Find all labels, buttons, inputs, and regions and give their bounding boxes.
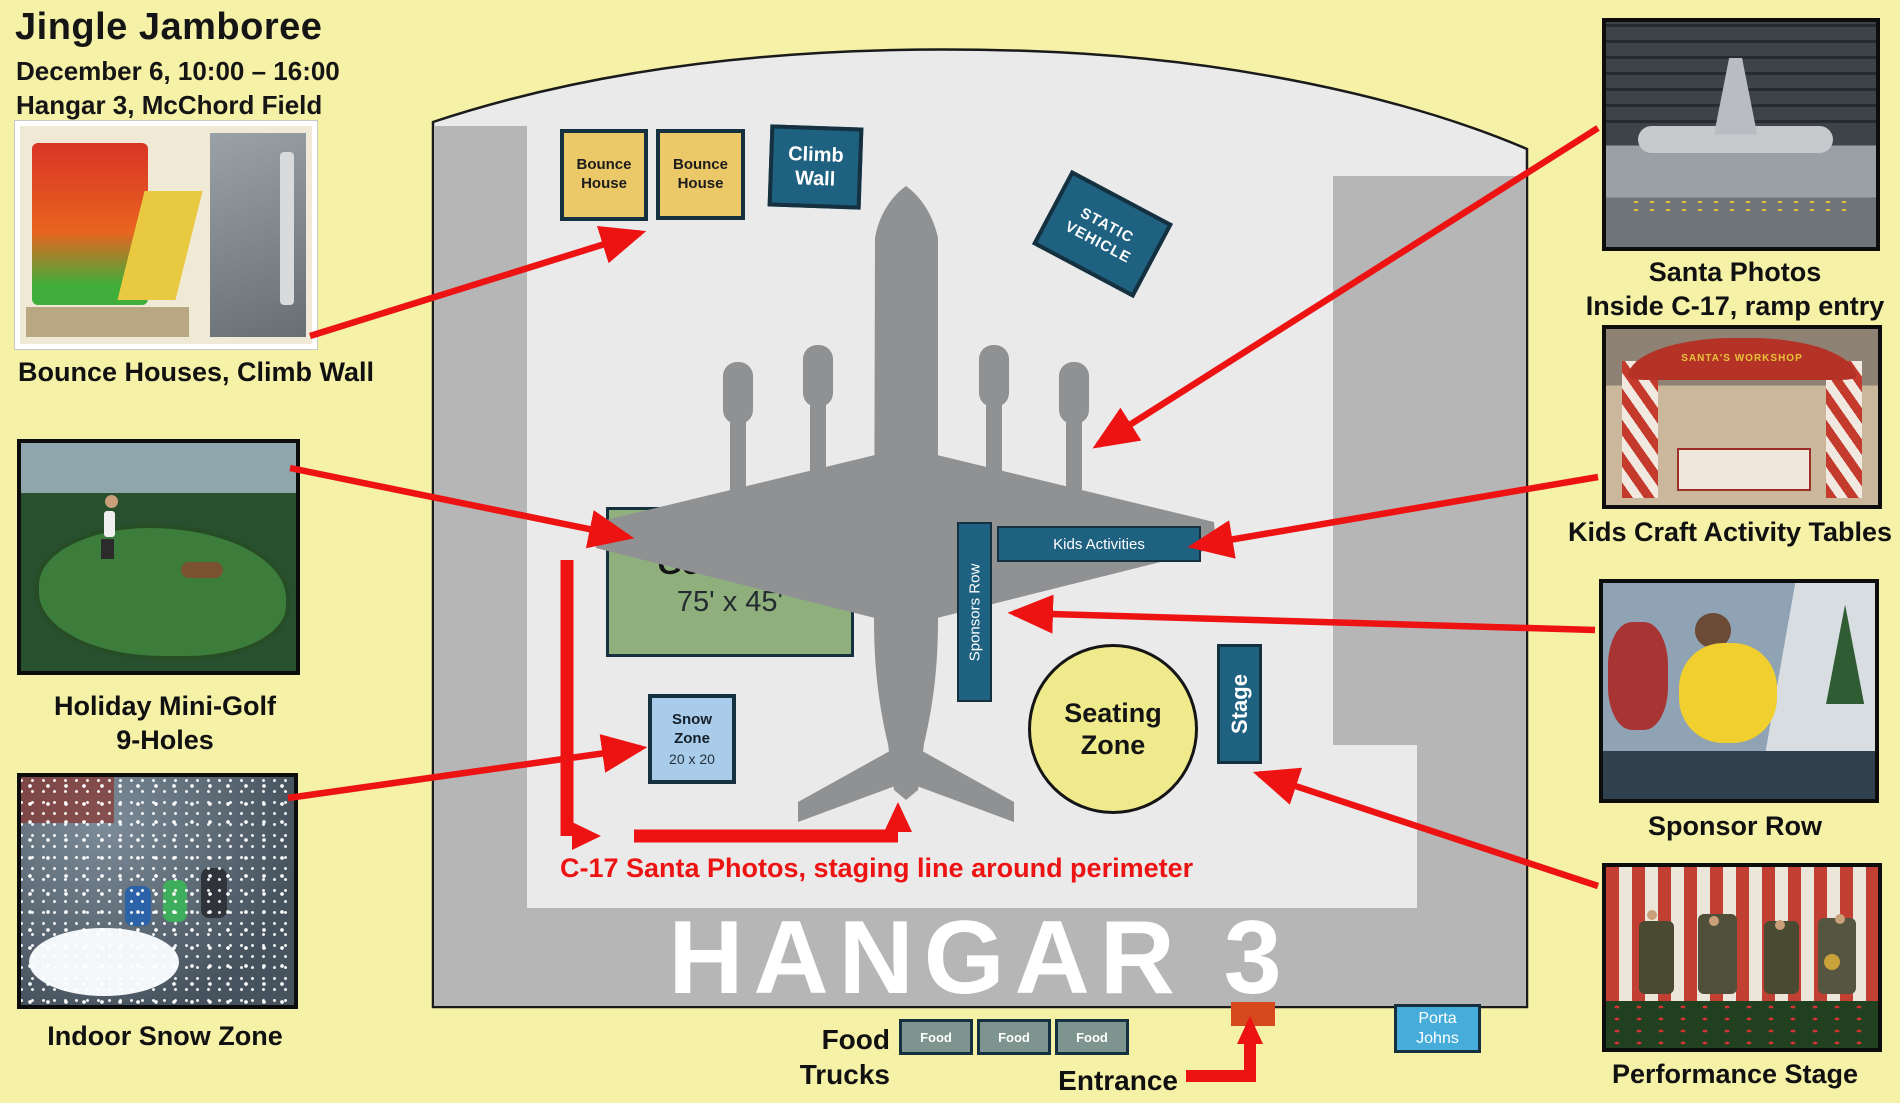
food-truck-2: Food (977, 1019, 1051, 1055)
seating-zone: Seating Zone (1028, 644, 1198, 814)
santa-caption: Santa Photos Inside C-17, ramp entry (1570, 256, 1900, 324)
photo-detail (1622, 361, 1657, 498)
mini-golf-caption-line1: Holiday Mini-Golf (0, 690, 330, 724)
sponsor-caption: Sponsor Row (1590, 810, 1880, 844)
bounce-house-2-label: Bounce House (660, 156, 741, 194)
photo-detail (101, 539, 114, 559)
snow-zone-label: Snow Zone (667, 711, 717, 749)
aircraft-engine (810, 400, 826, 478)
event-map-poster: Golf Zone 75' x 45' Jingle Jamboree Dece… (0, 0, 1900, 1103)
kids-activities-label: Kids Activities (1053, 536, 1145, 553)
photo-detail (26, 307, 190, 338)
page-title: Jingle Jamboree (15, 6, 322, 49)
climb-wall-zone: Climb Wall (768, 124, 864, 209)
photo-detail (1824, 954, 1840, 970)
arrow-sponsor (1014, 613, 1595, 630)
bounce-caption: Bounce Houses, Climb Wall (0, 356, 392, 390)
food-truck-3-label: Food (1076, 1030, 1108, 1045)
sponsors-row-zone: Sponsors Row (957, 522, 992, 702)
seating-zone-label: Seating Zone (1058, 697, 1168, 762)
snow-caption: Indoor Snow Zone (0, 1020, 330, 1054)
snow-zone-photo (17, 773, 298, 1009)
entrance-arrow (1186, 1042, 1250, 1076)
aircraft-fuselage (874, 186, 938, 800)
entrance-door-marker (1231, 1002, 1275, 1026)
bounce-houses-photo (15, 121, 317, 349)
aircraft-tail (798, 742, 1014, 822)
aircraft-engine (723, 362, 753, 424)
photo-detail (35, 524, 291, 660)
stage-zone: Stage (1217, 644, 1262, 764)
photo-detail (181, 562, 223, 578)
aircraft-engine (803, 345, 833, 407)
aircraft-engine (1066, 415, 1082, 497)
workshop-sign-text: SANTA'S WORKSHOP (1681, 353, 1803, 364)
static-vehicle-zone: STATIC VEHICLE (1032, 170, 1173, 298)
porta-johns-label: Porta Johns (1410, 1009, 1465, 1049)
craft-caption: Kids Craft Activity Tables (1560, 516, 1900, 550)
golf-zone: Golf Zone 75' x 45' (606, 507, 854, 657)
hangar-name: HANGAR 3 (433, 910, 1527, 1006)
photo-detail (104, 511, 115, 537)
arrow-santa (1098, 128, 1598, 445)
bounce-house-2: Bounce House (656, 129, 745, 220)
mini-golf-photo (17, 439, 300, 675)
photo-detail (105, 495, 118, 508)
workshop-arch: SANTA'S WORKSHOP (1628, 338, 1856, 380)
santa-caption-line1: Santa Photos (1570, 256, 1900, 290)
aircraft-engine (1059, 362, 1089, 424)
golf-zone-label: Golf Zone (658, 546, 803, 582)
snow-zone: Snow Zone 20 x 20 (648, 694, 736, 784)
arrow-craft (1194, 477, 1598, 546)
event-date: December 6, 10:00 – 16:00 (16, 56, 340, 87)
photo-detail (1826, 605, 1864, 704)
porta-johns-zone: Porta Johns (1394, 1004, 1481, 1053)
photo-detail (1639, 921, 1674, 993)
event-location: Hangar 3, McChord Field (16, 90, 322, 121)
bounce-house-1: Bounce House (560, 129, 648, 221)
staging-note: C-17 Santa Photos, staging line around p… (560, 853, 1193, 884)
hangar-right-annex-upper (1333, 176, 1526, 745)
mini-golf-caption-line2: 9-Holes (0, 724, 330, 758)
photo-detail (1603, 751, 1875, 799)
kids-activities-zone: Kids Activities (997, 526, 1201, 562)
photo-detail (1608, 622, 1668, 730)
arrow-golf (290, 468, 628, 537)
photo-detail (1698, 914, 1736, 994)
santa-caption-line2: Inside C-17, ramp entry (1570, 290, 1900, 324)
sponsor-row-photo (1599, 579, 1879, 803)
staging-arrowhead-up (884, 802, 912, 832)
snow-zone-dimensions: 20 x 20 (669, 751, 715, 767)
snow-flecks (21, 777, 294, 1005)
arrow-bounce (310, 233, 640, 336)
food-truck-3: Food (1055, 1019, 1129, 1055)
food-trucks-label: Food Trucks (730, 1022, 890, 1092)
performance-stage-photo (1602, 863, 1882, 1052)
kids-craft-photo: SANTA'S WORKSHOP (1602, 325, 1882, 509)
arrow-snow (288, 748, 641, 798)
entrance-label: Entrance (1020, 1063, 1178, 1098)
photo-detail (1606, 1001, 1878, 1048)
photo-detail (1628, 198, 1855, 212)
aircraft-engine (986, 400, 1002, 478)
photo-detail (1764, 921, 1799, 993)
hangar-left-wall (435, 126, 527, 908)
food-truck-2-label: Food (998, 1030, 1030, 1045)
golf-zone-dimensions: 75' x 45' (677, 586, 783, 619)
stage-label: Stage (1227, 674, 1253, 734)
aircraft-engine (979, 345, 1009, 407)
hangar-right-annex-lower (1417, 745, 1526, 908)
food-truck-1: Food (899, 1019, 973, 1055)
bounce-house-1-label: Bounce House (564, 156, 644, 194)
photo-detail (1677, 448, 1812, 491)
arrow-stage (1259, 774, 1598, 886)
photo-detail (280, 152, 295, 305)
photo-detail (1679, 643, 1777, 742)
performance-caption: Performance Stage (1580, 1058, 1890, 1092)
food-truck-1-label: Food (920, 1030, 952, 1045)
climb-wall-label: Climb Wall (772, 142, 859, 193)
santa-photos-photo (1602, 18, 1880, 251)
static-vehicle-label: STATIC VEHICLE (1058, 198, 1147, 270)
photo-detail (1826, 361, 1861, 498)
sponsors-row-label: Sponsors Row (966, 563, 983, 661)
aircraft-engine (730, 415, 746, 497)
mini-golf-caption: Holiday Mini-Golf 9-Holes (0, 690, 330, 758)
staging-arrowhead-right (572, 822, 601, 850)
